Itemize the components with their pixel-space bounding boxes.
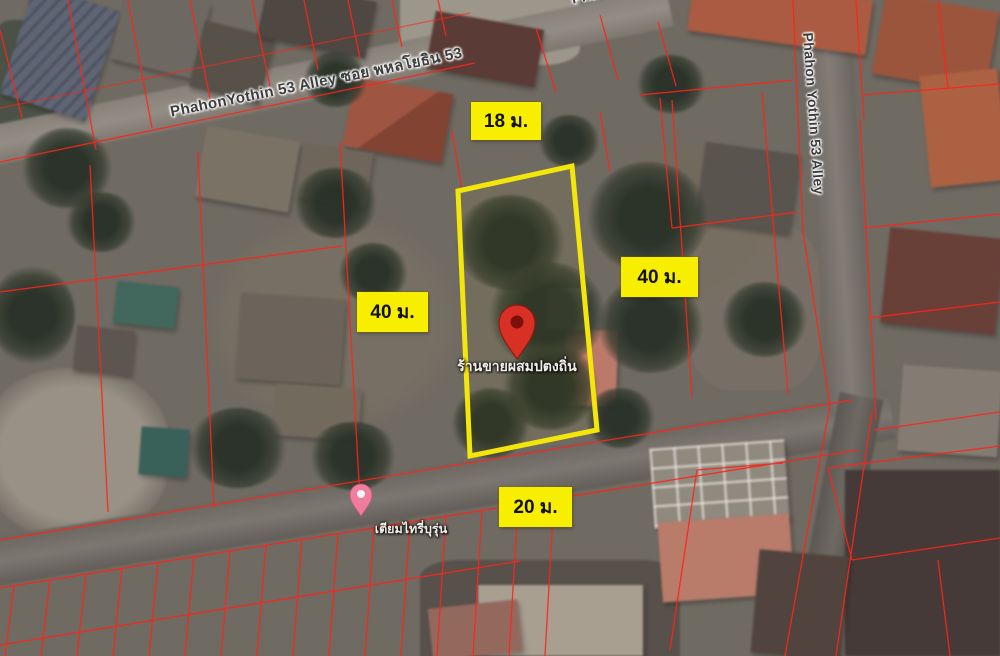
dimension-label-top: 18 ม. <box>471 102 541 140</box>
main-pin-place-label: ร้านขายผสมปตงถิ่น <box>450 356 584 378</box>
dimension-label-right-text: 40 ม. <box>637 262 681 292</box>
dimension-label-left: 40 ม. <box>357 292 428 332</box>
dimension-label-top-text: 18 ม. <box>484 106 528 136</box>
map-overlay-layer <box>0 0 1000 656</box>
satellite-map-canvas: PhahonYothin 53 Alley ซอย พหลโยธิน 53 Ph… <box>0 0 1000 656</box>
poi-pin-place-label: เตียมไทรี่บุรุ่น <box>350 519 472 539</box>
dimension-label-left-text: 40 ม. <box>370 297 414 327</box>
dimension-label-right: 40 ม. <box>621 257 698 297</box>
dimension-label-bottom-text: 20 ม. <box>513 492 557 522</box>
dimension-label-bottom: 20 ม. <box>499 487 572 527</box>
pink-place-pin-icon <box>350 484 372 516</box>
